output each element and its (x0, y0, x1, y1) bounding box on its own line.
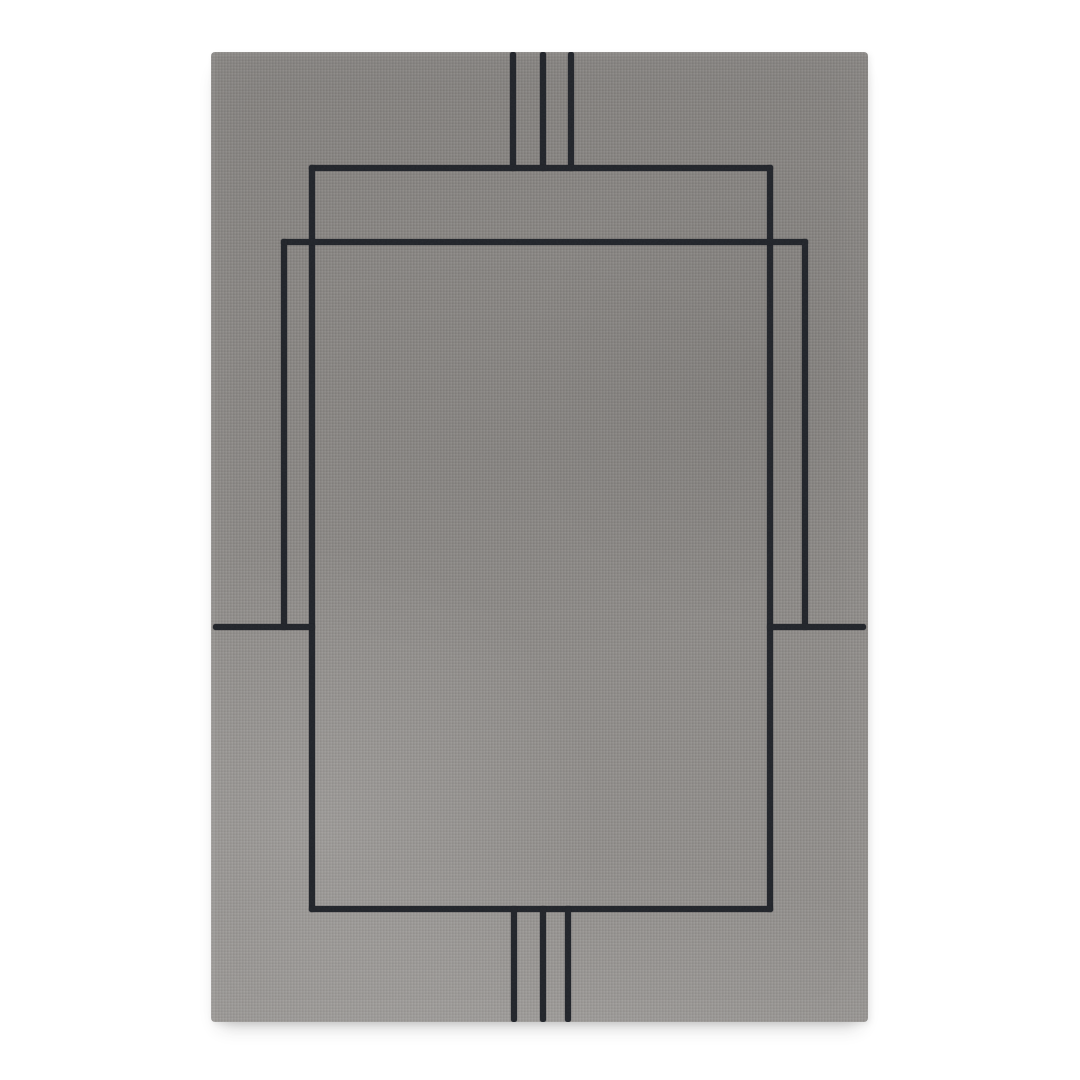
rug-line-bottom-stripe-left (511, 906, 517, 1022)
rug-line-rect-a-top (309, 165, 773, 171)
rug-line-rect-b-top (281, 239, 808, 245)
rug-line-rect-a-right (767, 165, 773, 912)
rug-line-bottom-stripe-middle (540, 906, 546, 1022)
rug-line-stub-left (213, 624, 315, 630)
rug-line-bottom-stripe-right (565, 906, 571, 1022)
rug-line-top-stripe-right (568, 52, 574, 171)
rug-line-top-stripe-left (510, 52, 516, 171)
rug-line-stub-right (767, 624, 866, 630)
rug-line-rect-a-left (309, 165, 315, 912)
rug-pattern (211, 52, 868, 1022)
rug-line-rect-b-right (802, 239, 808, 630)
rug-line-top-stripe-middle (540, 52, 546, 171)
product-photo-canvas (0, 0, 1080, 1080)
rug-line-rect-b-left (281, 239, 287, 630)
rug (211, 52, 868, 1022)
